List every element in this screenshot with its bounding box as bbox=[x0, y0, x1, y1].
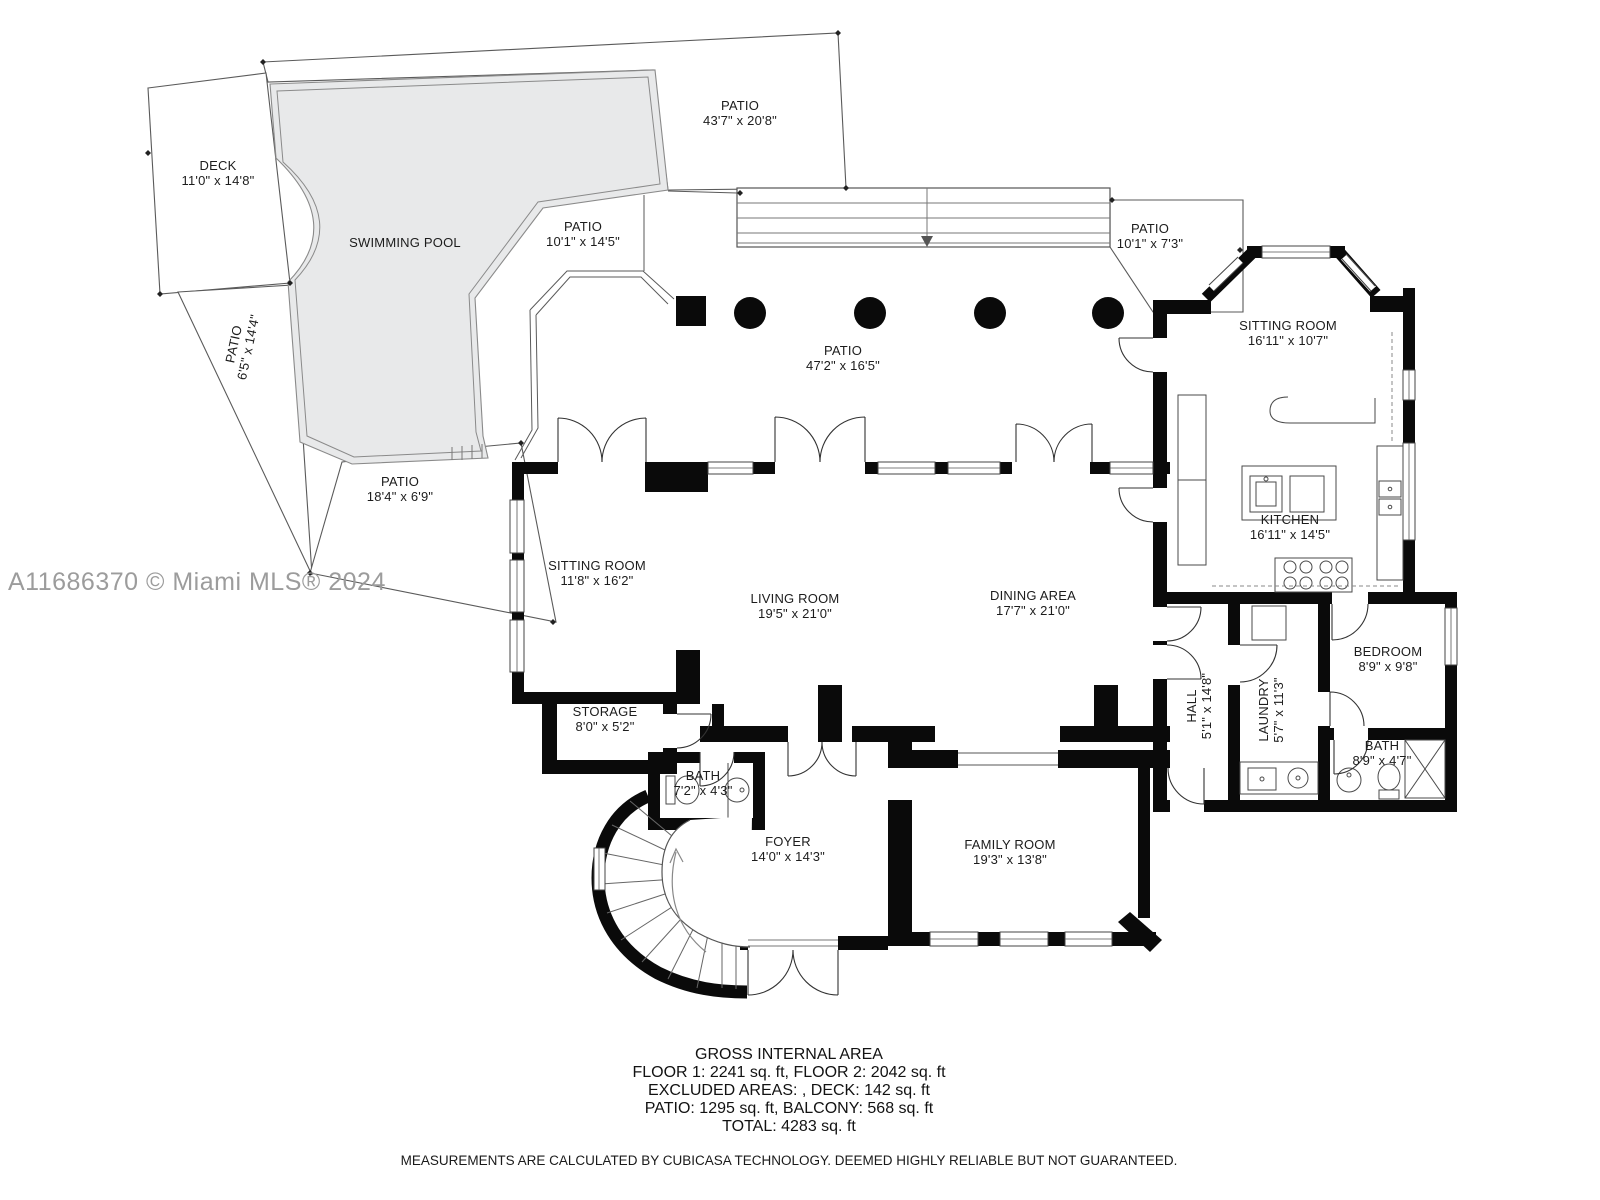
label-patio-main: PATIO47'2" x 16'5" bbox=[806, 343, 880, 373]
area-summary-title: GROSS INTERNAL AREA bbox=[0, 1046, 1578, 1064]
label-pool: SWIMMING POOL bbox=[349, 235, 461, 250]
label-dining: DINING AREA17'7" x 21'0" bbox=[990, 588, 1076, 618]
label-foyer: FOYER14'0" x 14'3" bbox=[751, 834, 825, 864]
patio-steps bbox=[737, 188, 1110, 247]
label-sitting-left: SITTING ROOM11'8" x 16'2" bbox=[548, 558, 646, 588]
label-family: FAMILY ROOM19'3" x 13'8" bbox=[964, 837, 1055, 867]
area-summary-patio: PATIO: 1295 sq. ft, BALCONY: 568 sq. ft bbox=[0, 1100, 1578, 1118]
label-hall: HALL5'1" x 14'8" bbox=[1184, 673, 1214, 740]
measurement-disclaimer: MEASUREMENTS ARE CALCULATED BY CUBICASA … bbox=[0, 1152, 1578, 1170]
label-bath-foyer: BATH7'2" x 4'3" bbox=[673, 768, 732, 798]
label-bedroom: BEDROOM8'9" x 9'8" bbox=[1354, 644, 1423, 674]
patio-columns bbox=[676, 296, 1124, 329]
label-storage: STORAGE8'0" x 5'2" bbox=[573, 704, 638, 734]
area-summary: GROSS INTERNAL AREA FLOOR 1: 2241 sq. ft… bbox=[0, 1046, 1578, 1170]
label-living: LIVING ROOM19'5" x 21'0" bbox=[751, 591, 840, 621]
label-bath-hall: BATH8'9" x 4'7" bbox=[1352, 738, 1411, 768]
floorplan-page: PATIO43'7" x 20'8" DECK11'0" x 14'8" SWI… bbox=[0, 0, 1600, 1200]
mls-watermark: A11686370 © Miami MLS® 2024 bbox=[8, 568, 386, 597]
swimming-pool-shape bbox=[270, 70, 668, 464]
label-patio-pool: PATIO10'1" x 14'5" bbox=[546, 219, 620, 249]
label-laundry: LAUNDRY5'7" x 11'3" bbox=[1256, 677, 1286, 743]
kitchen-fixtures bbox=[1178, 395, 1403, 592]
label-sitting-right: SITTING ROOM16'11" x 10'7" bbox=[1239, 318, 1337, 348]
patio-right-area bbox=[1110, 200, 1243, 312]
cased-opening bbox=[958, 750, 1058, 768]
area-summary-floors: FLOOR 1: 2241 sq. ft, FLOOR 2: 2042 sq. … bbox=[0, 1064, 1578, 1082]
floorplan-drawing: PATIO43'7" x 20'8" DECK11'0" x 14'8" SWI… bbox=[0, 0, 1600, 1200]
label-kitchen: KITCHEN16'11" x 14'5" bbox=[1250, 512, 1331, 542]
area-summary-excluded: EXCLUDED AREAS: , DECK: 142 sq. ft bbox=[0, 1082, 1578, 1100]
area-summary-total: TOTAL: 4283 sq. ft bbox=[0, 1118, 1578, 1136]
